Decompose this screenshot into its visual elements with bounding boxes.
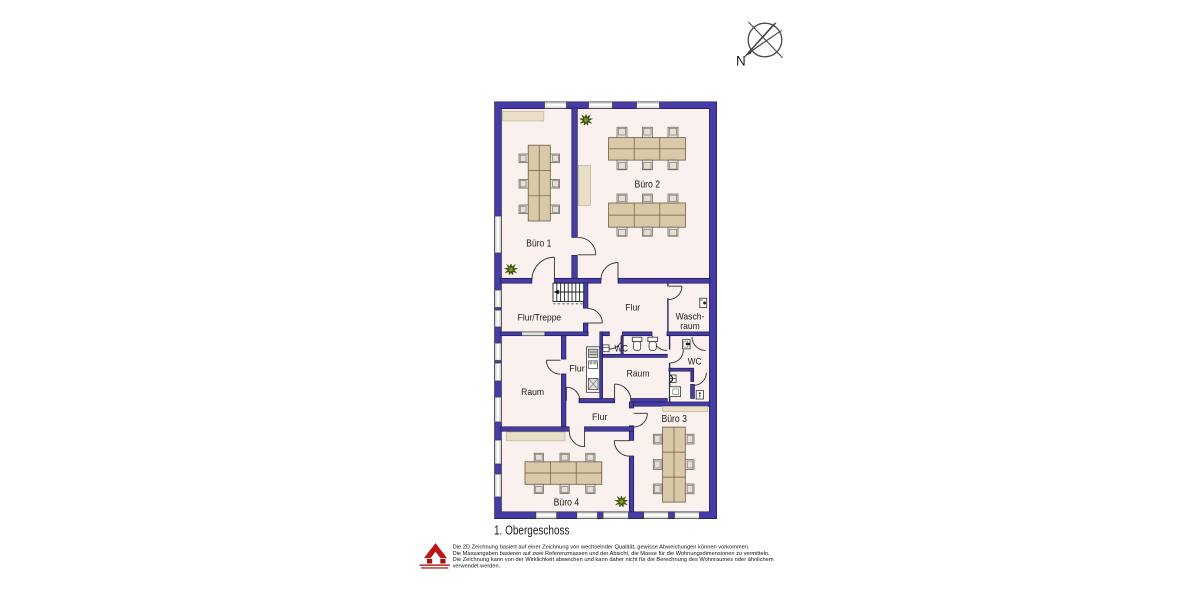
svg-text:Flur: Flur [625, 302, 640, 313]
svg-text:Raum: Raum [627, 368, 650, 379]
svg-text:Flur/Treppe: Flur/Treppe [518, 312, 562, 323]
svg-text:raum: raum [680, 321, 700, 332]
svg-text:Flur: Flur [592, 412, 607, 423]
svg-text:Flur: Flur [569, 364, 584, 375]
svg-text:Die Massangaben basieren auf z: Die Massangaben basieren auf zwei Refere… [453, 551, 770, 557]
svg-text:Büro 4: Büro 4 [554, 498, 580, 509]
svg-text:N: N [736, 54, 746, 69]
svg-text:Die 2D Zeichnung basiert auf e: Die 2D Zeichnung basiert auf einer Zeich… [453, 545, 750, 551]
svg-text:WC: WC [614, 343, 628, 354]
svg-text:Büro 3: Büro 3 [661, 414, 687, 425]
svg-text:Raum: Raum [521, 387, 544, 398]
svg-text:Die Zeichnung kann von der Wir: Die Zeichnung kann von der Wirklichkeit … [453, 557, 774, 563]
svg-text:Büro 1: Büro 1 [526, 239, 551, 250]
svg-text:Büro 2: Büro 2 [635, 179, 661, 190]
svg-text:verwendet werden.: verwendet werden. [453, 564, 501, 570]
svg-text:1. Obergeschoss: 1. Obergeschoss [494, 523, 570, 537]
svg-text:WC: WC [688, 356, 702, 367]
